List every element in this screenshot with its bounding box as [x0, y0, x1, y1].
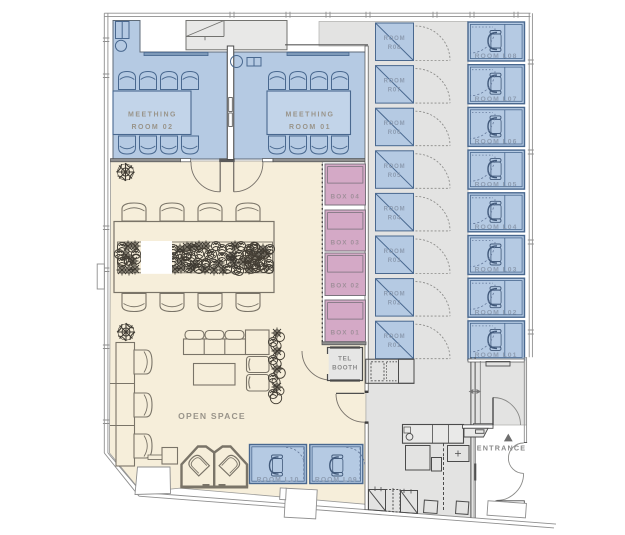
svg-text:ROOM: ROOM	[384, 121, 406, 127]
svg-text:BOX 01: BOX 01	[331, 330, 360, 337]
svg-text:ROOM 01: ROOM 01	[289, 124, 331, 131]
svg-text:ROOM: ROOM	[384, 36, 406, 42]
svg-text:ROOM: ROOM	[384, 334, 406, 340]
svg-text:ROOM L04: ROOM L04	[475, 224, 518, 231]
svg-text:ROOM: ROOM	[384, 164, 406, 170]
svg-text:R04: R04	[388, 215, 401, 221]
svg-text:ROOM: ROOM	[384, 292, 406, 298]
svg-text:ROOM L10: ROOM L10	[257, 476, 300, 483]
svg-text:R06: R06	[388, 130, 401, 136]
svg-text:BOOTH: BOOTH	[332, 365, 358, 372]
svg-text:ROOM L03: ROOM L03	[475, 267, 518, 274]
svg-text:BOX 03: BOX 03	[331, 240, 360, 247]
svg-text:ROOM L09: ROOM L09	[315, 476, 358, 483]
svg-text:ROOM L06: ROOM L06	[475, 139, 518, 146]
svg-text:ROOM L05: ROOM L05	[475, 181, 518, 188]
svg-text:ROOM: ROOM	[384, 206, 406, 212]
svg-text:ROOM L01: ROOM L01	[475, 352, 518, 359]
svg-text:R03: R03	[388, 258, 401, 264]
svg-text:R08: R08	[388, 45, 401, 51]
svg-text:TEL: TEL	[338, 356, 352, 363]
svg-text:ROOM L08: ROOM L08	[475, 53, 518, 60]
svg-text:R01: R01	[388, 343, 401, 349]
svg-text:R07: R07	[388, 88, 401, 94]
svg-text:MEETHING: MEETHING	[286, 112, 335, 119]
svg-text:BOX 02: BOX 02	[331, 283, 360, 290]
svg-text:ROOM: ROOM	[384, 249, 406, 255]
svg-text:MEETHING: MEETHING	[128, 112, 177, 119]
svg-text:ROOM L07: ROOM L07	[475, 96, 518, 103]
svg-text:OPEN SPACE: OPEN SPACE	[178, 411, 246, 421]
svg-text:BOX 04: BOX 04	[331, 194, 360, 201]
svg-text:ROOM L02: ROOM L02	[475, 309, 518, 316]
svg-text:R05: R05	[388, 173, 401, 179]
svg-text:ROOM: ROOM	[384, 79, 406, 85]
svg-text:ROOM 02: ROOM 02	[131, 124, 173, 131]
svg-text:R02: R02	[388, 301, 401, 307]
svg-text:ENTRANCE: ENTRANCE	[477, 444, 527, 453]
